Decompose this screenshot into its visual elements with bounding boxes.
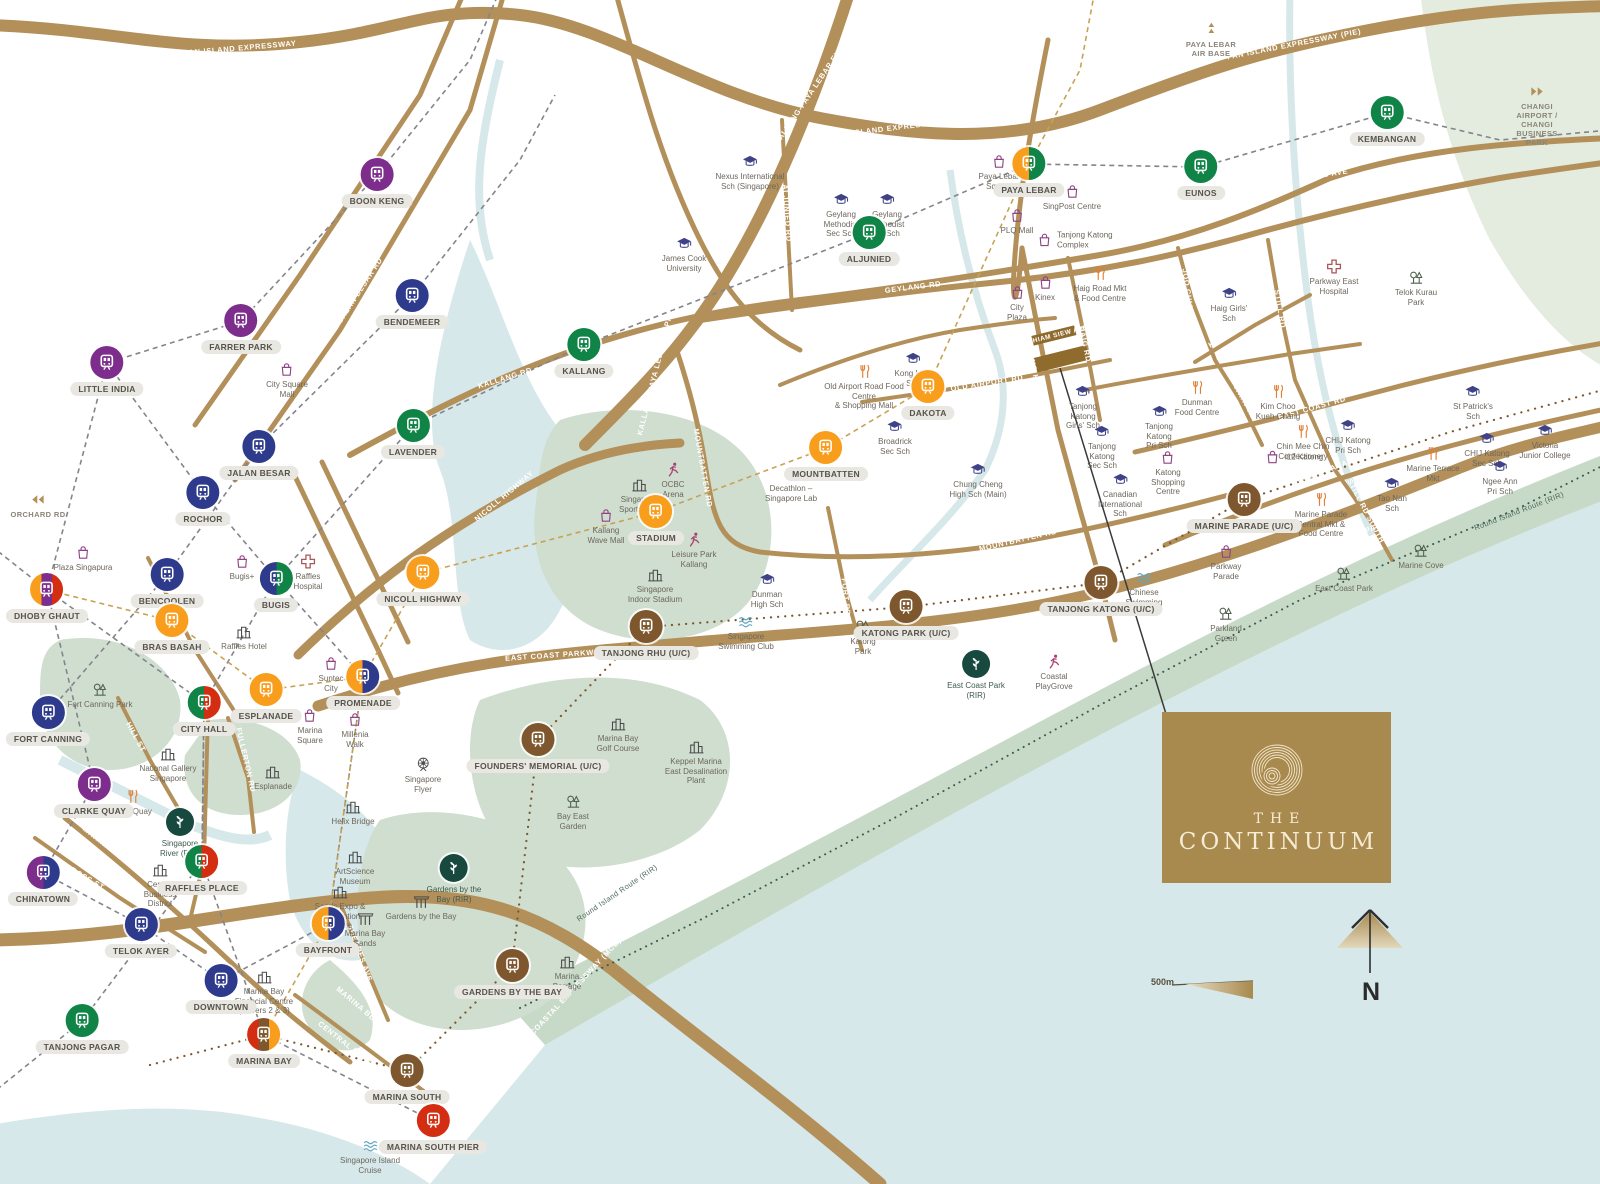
landmark-label: Parkland Green xyxy=(1210,624,1242,643)
train-icon xyxy=(249,437,268,456)
mrt-station: LITTLE INDIA xyxy=(70,346,143,396)
mrt-station-icon xyxy=(188,686,221,719)
mrt-station-label: ROCHOR xyxy=(175,512,230,526)
mrt-station-label: DAKOTA xyxy=(901,406,954,420)
rir-point: East Coast Park (RIR) xyxy=(947,650,1005,700)
mrt-station-label: BRAS BASAH xyxy=(134,640,209,654)
mrt-station-icon xyxy=(125,908,158,941)
park-icon xyxy=(1336,565,1353,582)
landmark-label: Katong Shopping Centre xyxy=(1151,468,1185,497)
train-icon xyxy=(33,863,52,882)
landmark: Tanjong Katong Complex xyxy=(1036,230,1113,249)
mrt-station-icon xyxy=(155,604,188,637)
landmark: ArtScience Museum xyxy=(336,848,375,886)
map-page: PAN ISLAND EXPRESSWAYPAN ISLAND EXPRESSW… xyxy=(0,0,1600,1184)
mrt-station-label: ESPLANADE xyxy=(231,709,302,723)
train-icon xyxy=(503,956,522,975)
landmark: Katong Shopping Centre xyxy=(1151,449,1185,497)
road-label: KALLANG-PAYA LEBAR EXPRESSWAY (KPE) xyxy=(772,0,883,146)
landmark: Kinex xyxy=(1035,274,1055,303)
mrt-station: ROCHOR xyxy=(175,476,230,526)
landmark-label: Haig Road Mkt & Food Centre xyxy=(1074,284,1127,303)
mrt-station: MARINA BAY xyxy=(228,1018,300,1068)
mrt-station-label: KALLANG xyxy=(554,364,613,378)
landmark-label: Marine Parade Central Mkt & Food Centre xyxy=(1295,510,1347,539)
train-icon xyxy=(1235,490,1254,509)
train-icon xyxy=(528,730,547,749)
school-icon xyxy=(1536,422,1553,439)
landmark-label: Dunman Food Centre xyxy=(1175,398,1219,417)
mrt-station-label: KATONG PARK (U/C) xyxy=(854,626,959,640)
road-label: FORT RD xyxy=(840,578,853,617)
bag-icon xyxy=(75,544,92,561)
bag-icon xyxy=(1218,543,1235,560)
road-label: KALLANG RD xyxy=(477,365,533,390)
road-label: DUNMAN RD xyxy=(1117,365,1170,380)
park-icon xyxy=(1412,542,1429,559)
train-icon xyxy=(266,569,285,588)
mrt-station-icon xyxy=(911,370,944,403)
mrt-station-label: BUGIS xyxy=(254,598,298,612)
landmark-label: Bay East Garden xyxy=(557,812,589,831)
building-icon xyxy=(256,968,273,985)
bag-icon xyxy=(1036,232,1053,249)
landmark: Singapore Flyer xyxy=(405,756,441,794)
bag-icon xyxy=(1063,183,1080,200)
landmark-label: Helix Bridge xyxy=(331,817,374,827)
mrt-station: MARINE PARADE (U/C) xyxy=(1187,483,1302,533)
flyer-icon xyxy=(414,756,431,773)
building-icon xyxy=(687,738,704,755)
mrt-station-label: LITTLE INDIA xyxy=(70,382,143,396)
landmark: Parkland Green xyxy=(1210,605,1242,643)
school-icon xyxy=(904,350,921,367)
compass-n-label: N xyxy=(1354,978,1388,1007)
landmark-label: Keppel Marina East Desalination Plant xyxy=(665,757,727,786)
mrt-station: EUNOS xyxy=(1177,150,1225,200)
mrt-station-icon xyxy=(77,768,110,801)
landmark: Broadrick Sec Sch xyxy=(878,418,912,456)
park-icon xyxy=(564,793,581,810)
landmark: Esplanade xyxy=(254,763,292,792)
landmark-label: Gardens by the Bay xyxy=(386,912,457,922)
school-icon xyxy=(1074,383,1091,400)
continuum-logo-icon xyxy=(1244,741,1310,803)
road-label: PAN ISLAND EXPRESSWAY (PIE) xyxy=(1226,27,1362,62)
mrt-station-icon xyxy=(361,158,394,191)
landmark-label: Chung Cheng High Sch (Main) xyxy=(949,480,1006,499)
landmark-label: Singapore Indoor Stadium xyxy=(628,585,682,604)
landmark: CHANGI AIRPORT / CHANGI BUSINESS PARK xyxy=(1506,83,1569,147)
mrt-station-label: JALAN BESAR xyxy=(219,466,298,480)
route-label: Round Island Route (RIR) xyxy=(575,863,659,924)
landmark: East Coast Park xyxy=(1315,565,1373,594)
mrt-station: KEMBANGAN xyxy=(1350,96,1425,146)
landmark: St Patrick's Sch xyxy=(1453,383,1493,421)
landmark-label: ORCHARD RD xyxy=(11,510,66,519)
landmark-label: Marine Terrace Mkt xyxy=(1406,464,1459,483)
landmark: Marine Terrace Mkt xyxy=(1406,445,1459,483)
landmark-label: Nexus International Sch (Singapore) xyxy=(716,172,785,191)
landmark-label: James Cook University xyxy=(662,254,706,273)
mrt-station-icon xyxy=(640,495,673,528)
landmark-label: Plaza Singapura xyxy=(54,563,113,573)
landmark: City Square Mall xyxy=(266,361,308,399)
road-label: STILL RD xyxy=(1272,289,1288,329)
mrt-station-label: TANJONG RHU (U/C) xyxy=(594,646,699,660)
mrt-station-icon xyxy=(204,964,237,997)
road-label: PAN ISLAND EXPRESSWAY (PIE) xyxy=(832,114,969,140)
mrt-station-icon xyxy=(1084,566,1117,599)
landmark-label: Kallang Wave Mall xyxy=(587,526,624,545)
landmark: Chin Mee Chin Confectionery xyxy=(1277,423,1330,461)
train-icon xyxy=(397,1061,416,1080)
mrt-station-icon xyxy=(31,573,64,606)
train-icon xyxy=(414,563,433,582)
food-icon xyxy=(1189,379,1206,396)
rir-point-label: East Coast Park (RIR) xyxy=(947,681,1005,700)
landmark: Tao Nan Sch xyxy=(1377,475,1407,513)
road-label: JOO CHIAT RD xyxy=(1180,268,1197,330)
landmark: Chung Cheng High Sch (Main) xyxy=(949,461,1006,499)
mrt-station-icon xyxy=(889,590,922,623)
mrt-station-icon xyxy=(187,476,220,509)
mrt-station-label: NICOLL HIGHWAY xyxy=(376,592,469,606)
landmark-label: Tanjong Katong Sec Sch xyxy=(1087,442,1117,471)
building-icon xyxy=(265,763,282,780)
mrt-station: DAKOTA xyxy=(901,370,954,420)
train-icon xyxy=(211,971,230,990)
mrt-station: BENCOOLEN xyxy=(131,558,204,608)
school-icon xyxy=(969,461,986,478)
train-icon xyxy=(575,335,594,354)
bag-icon xyxy=(1009,207,1026,224)
school-icon xyxy=(742,153,759,170)
road-label: OPHIR RD xyxy=(334,542,361,584)
arr-r-icon xyxy=(1529,83,1546,100)
school-icon xyxy=(886,418,903,435)
landmark-label: Tanjong Katong Complex xyxy=(1057,230,1113,249)
bag-icon xyxy=(301,707,318,724)
landmark-label: Tanjong Katong Pri Sch xyxy=(1145,422,1173,451)
food-icon xyxy=(1312,491,1329,508)
landmark-label: National Gallery Singapore xyxy=(140,764,197,783)
landmark-label: Millenia Walk xyxy=(341,730,368,749)
landmark: Telok Kurau Park xyxy=(1395,269,1437,307)
landmark: National Gallery Singapore xyxy=(140,745,197,783)
landmark: Marine Parade Central Mkt & Food Centre xyxy=(1295,491,1347,539)
landmark: Nexus International Sch (Singapore) xyxy=(716,153,785,191)
train-icon xyxy=(193,852,212,871)
road-label: GEYLANG RD xyxy=(884,279,941,295)
landmark-label: Ngee Ann Pri Sch xyxy=(1482,477,1517,496)
bag-icon xyxy=(1036,274,1053,291)
landmark-label: Decathlon – Singapore Lab xyxy=(765,484,817,503)
mrt-station-label: DHOBY GHAUT xyxy=(6,609,88,623)
park-icon xyxy=(1217,605,1234,622)
rir-point-icon xyxy=(166,808,194,836)
mrt-station: PROMENADE xyxy=(326,660,400,710)
mrt-station-label: MOUNTBATTEN xyxy=(784,467,868,481)
landmark: City Plaza xyxy=(1007,284,1027,322)
mrt-station-icon xyxy=(629,610,662,643)
landmark-label: Parkway East Hospital xyxy=(1310,277,1359,296)
landmark: Raffles Hotel xyxy=(221,623,267,652)
road-label: TANJONG KATONG RD xyxy=(1022,331,1050,425)
mrt-station: CHINATOWN xyxy=(8,856,78,906)
school-icon xyxy=(1383,475,1400,492)
logo-line-the: THE xyxy=(1247,811,1307,827)
train-icon xyxy=(1020,154,1039,173)
mrt-station-label: FORT CANNING xyxy=(6,732,90,746)
landmark-label: St Patrick's Sch xyxy=(1453,402,1493,421)
mrt-station-icon xyxy=(1013,147,1046,180)
logo-box: THE CONTINUUM xyxy=(1162,712,1391,883)
swim-icon xyxy=(361,1137,378,1154)
mrt-station: TANJONG RHU (U/C) xyxy=(594,610,699,660)
mrt-station-label: ALJUNIED xyxy=(839,252,900,266)
road-label: JOO CHIAT RD xyxy=(1221,364,1259,422)
mrt-station: FOUNDERS' MEMORIAL (U/C) xyxy=(467,723,610,773)
mrt-station: CLARKE QUAY xyxy=(54,768,134,818)
food-icon xyxy=(1091,265,1108,282)
mrt-station-label: MARINA SOUTH xyxy=(365,1090,450,1104)
mrt-station: BAYFRONT xyxy=(296,907,360,957)
mrt-station: BOON KENG xyxy=(342,158,413,208)
mrt-station-icon xyxy=(247,1018,280,1051)
mrt-station-label: FARRER PARK xyxy=(201,340,281,354)
landmark-label: CHANGI AIRPORT / CHANGI BUSINESS PARK xyxy=(1506,102,1569,147)
train-icon xyxy=(859,223,878,242)
landmark-label: Bugis+ xyxy=(230,572,255,582)
landmark-label: Raffles Hotel xyxy=(221,642,267,652)
train-icon xyxy=(254,1025,273,1044)
train-icon xyxy=(403,416,422,435)
mrt-station-label: TANJONG PAGAR xyxy=(36,1040,129,1054)
road-label: MOUNTBATTEN RD xyxy=(692,428,715,508)
building-icon xyxy=(236,623,253,640)
landmark: Tanjong Katong Sec Sch xyxy=(1087,423,1117,471)
mrt-station: DHOBY GHAUT xyxy=(6,573,88,623)
landmark: Singapore Swimming Club xyxy=(718,613,774,651)
school-icon xyxy=(1339,417,1356,434)
landmark: PLQ Mall xyxy=(1001,207,1034,236)
mrt-station: BRAS BASAH xyxy=(134,604,209,654)
mrt-station-icon xyxy=(250,673,283,706)
landmark: Dunman High Sch xyxy=(751,571,783,609)
mrt-station: MARINA SOUTH xyxy=(365,1054,450,1104)
food-icon xyxy=(1425,445,1442,462)
mrt-station-label: BAYFRONT xyxy=(296,943,360,957)
mrt-station-icon xyxy=(26,856,59,889)
sprout-icon xyxy=(446,860,462,876)
mrt-station-label: MARINA SOUTH PIER xyxy=(379,1140,487,1154)
road-label: GUILLEMARD RD xyxy=(838,331,910,351)
mrt-station-icon xyxy=(259,562,292,595)
landmark-label: Tao Nan Sch xyxy=(1377,494,1407,513)
landmark-label: Marina Square xyxy=(297,726,323,745)
school-icon xyxy=(1151,403,1168,420)
train-icon xyxy=(1091,573,1110,592)
mrt-station-label: RAFFLES PLACE xyxy=(157,881,247,895)
mrt-station: TELOK AYER xyxy=(105,908,177,958)
mrt-station: TANJONG KATONG (U/C) xyxy=(1039,566,1162,616)
landmark: ORCHARD RD xyxy=(11,491,66,519)
train-icon xyxy=(38,703,57,722)
landmark: Singapore Indoor Stadium xyxy=(628,566,682,604)
train-icon xyxy=(162,611,181,630)
road-label: MARINA BLVD xyxy=(81,824,133,867)
mrt-station-icon xyxy=(224,304,257,337)
mrt-station-icon xyxy=(407,556,440,589)
food-icon xyxy=(1294,423,1311,440)
mrt-station: MOUNTBATTEN xyxy=(784,431,868,481)
road-label: MARINA BLVD xyxy=(334,985,385,1030)
logo-line-continuum: CONTINUUM xyxy=(1175,829,1378,855)
mrt-station: ESPLANADE xyxy=(231,673,302,723)
building-icon xyxy=(631,476,648,493)
bag-icon xyxy=(1160,449,1177,466)
landmark-label: Telok Kurau Park xyxy=(1395,288,1437,307)
road-label: SERANGOON RD xyxy=(302,225,348,289)
mrt-station-icon xyxy=(347,660,380,693)
mrt-station: CITY HALL xyxy=(173,686,236,736)
mrt-station: RAFFLES PLACE xyxy=(157,845,247,895)
mrt-station-label: MARINE PARADE (U/C) xyxy=(1187,519,1302,533)
road-label: NICOLL HIGHWAY xyxy=(473,469,536,524)
train-icon xyxy=(84,775,103,794)
train-icon xyxy=(132,915,151,934)
train-icon xyxy=(402,286,421,305)
landmark-label: Kim Choo Kueh Chang xyxy=(1256,402,1300,421)
building-icon xyxy=(610,715,627,732)
mrt-station-icon xyxy=(1184,150,1217,183)
building-icon xyxy=(159,745,176,762)
train-icon xyxy=(195,693,214,712)
mrt-station: LAVENDER xyxy=(381,409,445,459)
landmark-label: Marine Cove xyxy=(1398,561,1443,571)
mrt-station: BENDEMEER xyxy=(376,279,449,329)
landmark-label: Victoria Junior College xyxy=(1519,441,1570,460)
road-label: OLD AIRPORT RD xyxy=(950,373,1024,393)
food-icon xyxy=(856,363,873,380)
mrt-station-label: CHINATOWN xyxy=(8,892,78,906)
school-icon xyxy=(1221,285,1238,302)
mrt-station-label: EUNOS xyxy=(1177,186,1225,200)
school-icon xyxy=(879,191,896,208)
landmark: Haig Girls' Sch xyxy=(1211,285,1248,323)
landmark-label: Dunman High Sch xyxy=(751,590,783,609)
landmark-label: Singapore Flyer xyxy=(405,775,441,794)
mrt-station-label: LAVENDER xyxy=(381,445,445,459)
train-icon xyxy=(1378,103,1397,122)
mrt-station-icon xyxy=(31,696,64,729)
mrt-station: KATONG PARK (U/C) xyxy=(854,590,959,640)
rir-point-icon xyxy=(962,650,990,678)
train-icon xyxy=(38,580,57,599)
swim-icon xyxy=(737,613,754,630)
road-label: SIMS AVE xyxy=(1307,166,1348,181)
train-icon xyxy=(257,680,276,699)
landmark-label: Haig Girls' Sch xyxy=(1211,304,1248,323)
mrt-station-icon xyxy=(810,431,843,464)
mrt-station-icon xyxy=(242,430,275,463)
mrt-station-icon xyxy=(568,328,601,361)
landmark: Tanjong Katong Pri Sch xyxy=(1145,403,1173,451)
landmark-label: PAYA LEBAR AIR BASE xyxy=(1186,40,1236,58)
bag-icon xyxy=(1008,284,1025,301)
landmark-label: Canadian International Sch xyxy=(1098,490,1142,519)
park-icon xyxy=(1408,269,1425,286)
train-icon xyxy=(231,311,250,330)
train-icon xyxy=(423,1111,442,1130)
mrt-station-label: GARDENS BY THE BAY xyxy=(454,985,570,999)
landmark: Dunman Food Centre xyxy=(1175,379,1219,417)
run-icon xyxy=(1045,653,1062,670)
train-icon xyxy=(98,353,117,372)
landmark-label: Chin Mee Chin Confectionery xyxy=(1277,442,1330,461)
landmark: Parkway Parade xyxy=(1211,543,1242,581)
mrt-station: TANJONG PAGAR xyxy=(36,1004,129,1054)
train-icon xyxy=(918,377,937,396)
building-icon xyxy=(331,883,348,900)
mrt-station: PAYA LEBAR xyxy=(993,147,1064,197)
school-icon xyxy=(1112,471,1129,488)
mrt-station: GARDENS BY THE BAY xyxy=(454,949,570,999)
mrt-station-label: KEMBANGAN xyxy=(1350,132,1425,146)
mrt-station-label: BENDEMEER xyxy=(376,315,449,329)
school-icon xyxy=(759,571,776,588)
mrt-station-label: TANJONG KATONG (U/C) xyxy=(1039,602,1162,616)
train-icon xyxy=(1191,157,1210,176)
mrt-station-label: CLARKE QUAY xyxy=(54,804,134,818)
landmark: Marine Cove xyxy=(1398,542,1443,571)
sprout-icon xyxy=(172,814,188,830)
landmark: Haig Road Mkt & Food Centre xyxy=(1074,265,1127,303)
mrt-station: JALAN BESAR xyxy=(219,430,298,480)
landmark-label: East Coast Park xyxy=(1315,584,1373,594)
landmark: Millenia Walk xyxy=(341,711,368,749)
mrt-station-icon xyxy=(390,1054,423,1087)
food-icon xyxy=(1269,383,1286,400)
building-icon xyxy=(344,798,361,815)
bag-icon xyxy=(347,711,364,728)
mrt-station-label: CITY HALL xyxy=(173,722,236,736)
landmark: Parkway East Hospital xyxy=(1310,258,1359,296)
landmark: Coastal PlayGrove xyxy=(1035,653,1072,691)
road-label: ALJUNIED RD xyxy=(780,184,793,242)
landmark-label: City Plaza xyxy=(1007,303,1027,322)
landmark-label: SingPost Centre xyxy=(1043,202,1101,212)
train-icon xyxy=(647,502,666,521)
building-icon xyxy=(347,848,364,865)
mrt-station: DOWNTOWN xyxy=(186,964,257,1014)
mrt-station-icon xyxy=(65,1004,98,1037)
school-icon xyxy=(1093,423,1110,440)
landmark: Helix Bridge xyxy=(331,798,374,827)
rir-point-label: Gardens by the Bay (RIR) xyxy=(427,885,482,904)
landmark: Keppel Marina East Desalination Plant xyxy=(665,738,727,786)
road-label: KALLANG-PAYA LEBAR EXPRESSWAY (KPE) xyxy=(635,254,689,436)
school-icon xyxy=(1478,430,1495,447)
road-label: PAN ISLAND EXPRESSWAY xyxy=(183,39,297,58)
landmark-label: Singapore Island Cruise xyxy=(340,1156,400,1175)
mrt-station-icon xyxy=(1371,96,1404,129)
mrt-station-label: PROMENADE xyxy=(326,696,400,710)
bag-icon xyxy=(597,507,614,524)
landmark: Bay East Garden xyxy=(557,793,589,831)
landmark: Canadian International Sch xyxy=(1098,471,1142,519)
